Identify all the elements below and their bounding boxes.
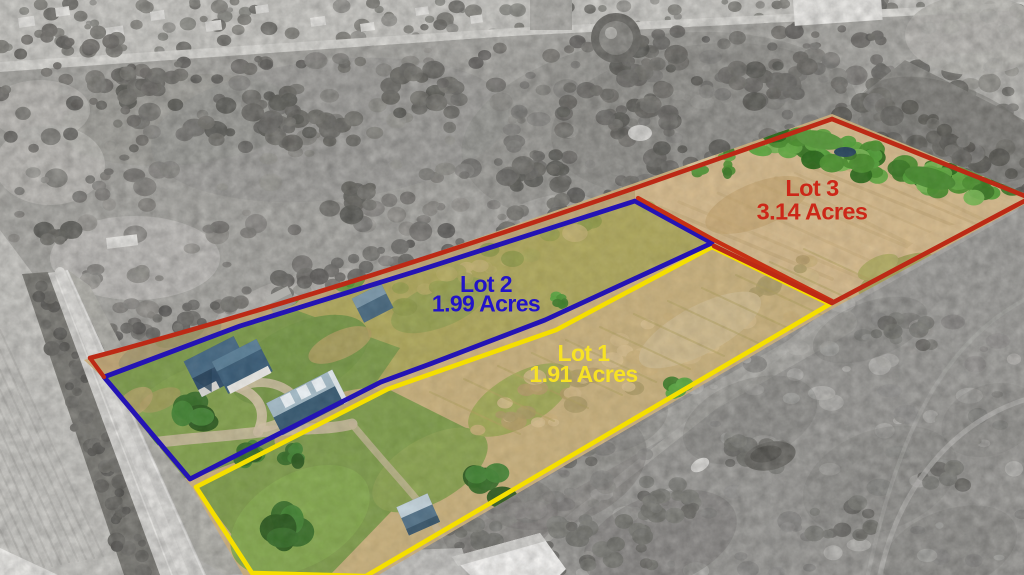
svg-text:1.91 Acres: 1.91 Acres: [529, 361, 637, 387]
svg-text:3.14 Acres: 3.14 Acres: [757, 199, 868, 225]
svg-text:1.99 Acres: 1.99 Acres: [432, 291, 540, 317]
svg-text:Lot 3: Lot 3: [785, 175, 839, 201]
